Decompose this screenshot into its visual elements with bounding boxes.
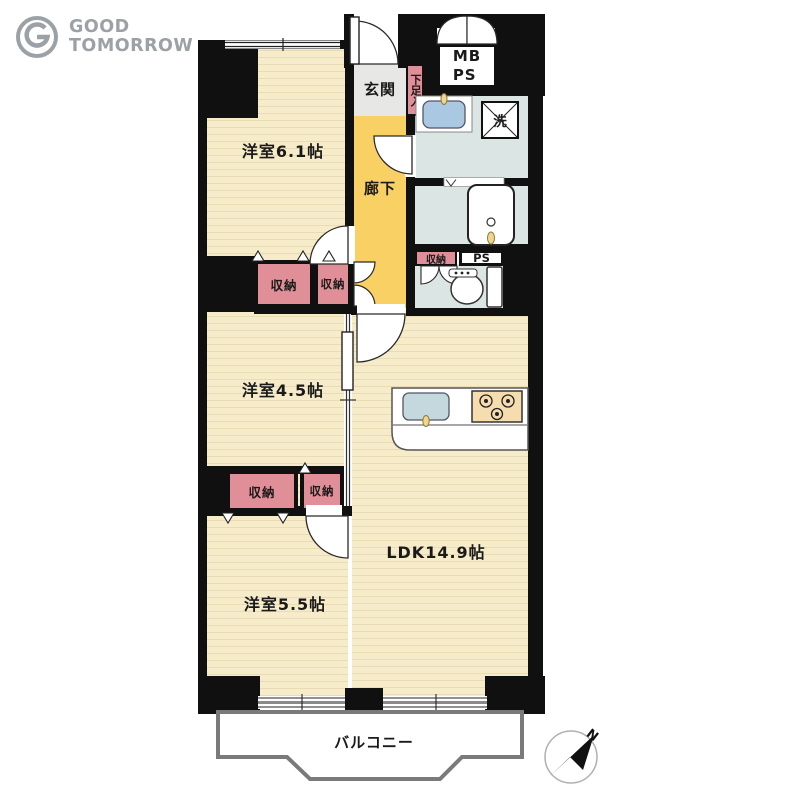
logo: GOOD TOMORROW [14,14,193,60]
bedroom-61-label: 洋室6.1帖 [242,138,324,162]
pipe-space-lower-label: PS [473,251,490,265]
entrance-door-arc [350,17,398,64]
closet-2-label: 収納 [321,276,346,292]
wall-segment [345,688,383,714]
bedroom-55-label: 洋室5.5帖 [244,591,326,615]
wall-segment [345,40,354,226]
logo-line1: GOOD [69,18,193,37]
wall-segment [528,88,543,714]
shoe-cabinet: 下足入 [406,64,424,116]
compass-north-label: N [583,726,601,745]
closet-1: 収納 [254,260,314,308]
hallway-label: 廊下 [364,178,396,199]
wall-segment [437,88,497,96]
ldk-floor [352,310,528,700]
floorplan-canvas: GOOD TOMORROW 下足入 MB PS [0,0,800,800]
wall-segment [198,40,258,118]
bathroom-floor [415,186,528,246]
wall-segment [198,676,260,714]
logo-text: GOOD TOMORROW [69,18,193,57]
wall-segment [406,178,444,186]
shoe-cabinet-label: 下足入 [407,74,423,107]
wall-segment [424,14,545,28]
ldk-label: LDK14.9帖 [386,539,485,563]
closet-5: 収納 [300,470,344,512]
wall-segment [495,20,545,96]
wall-segment [406,308,528,316]
closet-5-label: 収納 [310,483,335,499]
wall-segment [503,244,528,316]
wall-segment [424,28,437,96]
compass-icon: N [545,726,601,783]
closet-4-label: 収納 [248,482,275,501]
closet-4: 収納 [226,470,298,512]
entrance-label: 玄関 [364,79,396,100]
toilet-floor [415,264,505,310]
bedroom-45-label: 洋室4.5帖 [242,377,324,401]
pipe-space-lower: PS [459,250,504,266]
wall-segment [398,14,424,68]
closet-2: 収納 [314,260,352,308]
logo-line2: TOMORROW [69,37,193,56]
meter-box-label: MB [453,47,481,66]
wall-segment [504,178,528,186]
meter-box-pipe-space: MB PS [437,44,497,88]
hallway-floor [352,116,406,308]
good-tomorrow-logo-icon [14,14,60,60]
pipe-space-upper-label: PS [453,66,481,85]
wall-segment [198,256,256,312]
closet-1-label: 収納 [270,275,297,294]
washing-machine-label: 洗 [492,110,508,130]
wall-segment [406,95,415,316]
balcony-label: バルコニー [334,732,414,753]
washing-machine-space: 洗 [481,101,519,139]
wall-segment [198,40,207,714]
closet-3-label: 収納 [426,251,446,266]
closet-3: 収納 [415,250,457,266]
